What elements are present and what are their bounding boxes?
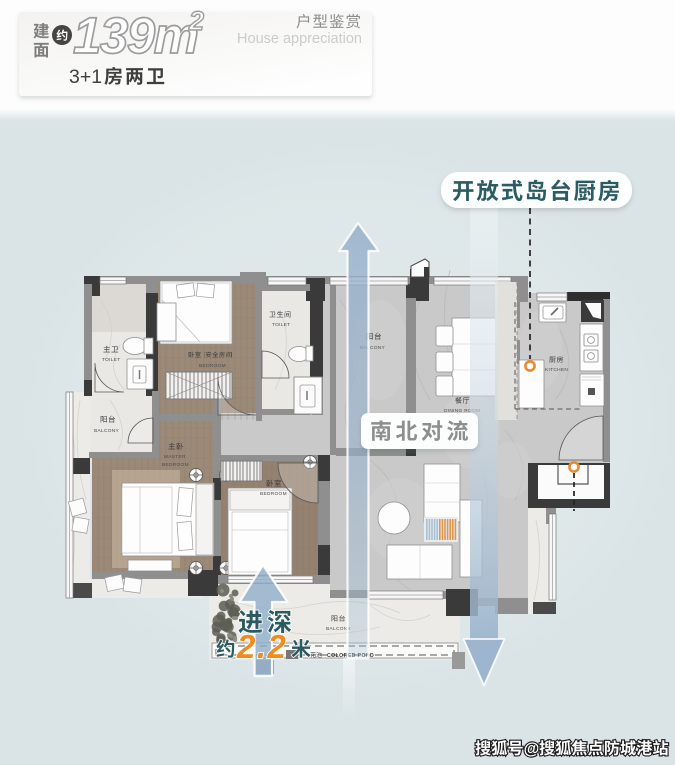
svg-text:BEDROOM: BEDROOM bbox=[162, 462, 189, 468]
svg-text:BALCONY: BALCONY bbox=[94, 428, 120, 434]
svg-text:2.2: 2.2 bbox=[236, 628, 287, 665]
svg-text:TOILET: TOILET bbox=[272, 322, 291, 328]
svg-text:BEDROOM: BEDROOM bbox=[260, 491, 287, 497]
svg-text:3+1: 3+1 bbox=[69, 66, 102, 88]
svg-text:MASTER: MASTER bbox=[164, 454, 186, 460]
svg-text:TOILET: TOILET bbox=[102, 357, 121, 363]
svg-text:@: @ bbox=[524, 740, 540, 758]
svg-text:KITCHEN: KITCHEN bbox=[545, 367, 568, 373]
svg-text:BEDROOM: BEDROOM bbox=[199, 363, 226, 369]
svg-text:139m: 139m bbox=[73, 7, 198, 64]
svg-text:House appreciation: House appreciation bbox=[237, 31, 362, 47]
svg-text:2: 2 bbox=[188, 6, 204, 36]
